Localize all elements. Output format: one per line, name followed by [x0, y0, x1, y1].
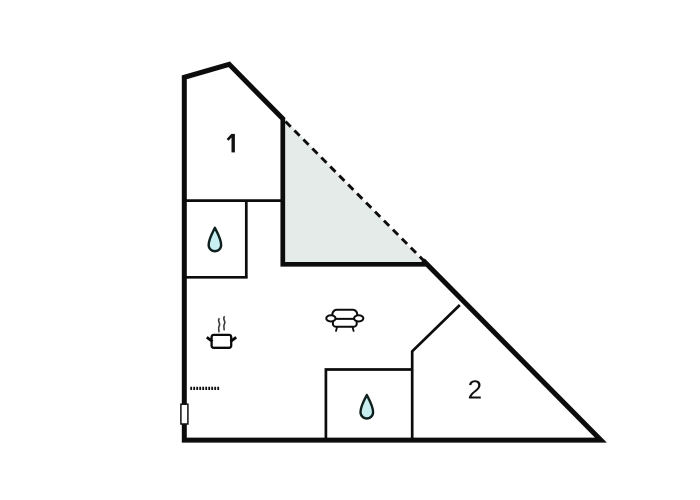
svg-text:2: 2	[468, 375, 482, 405]
